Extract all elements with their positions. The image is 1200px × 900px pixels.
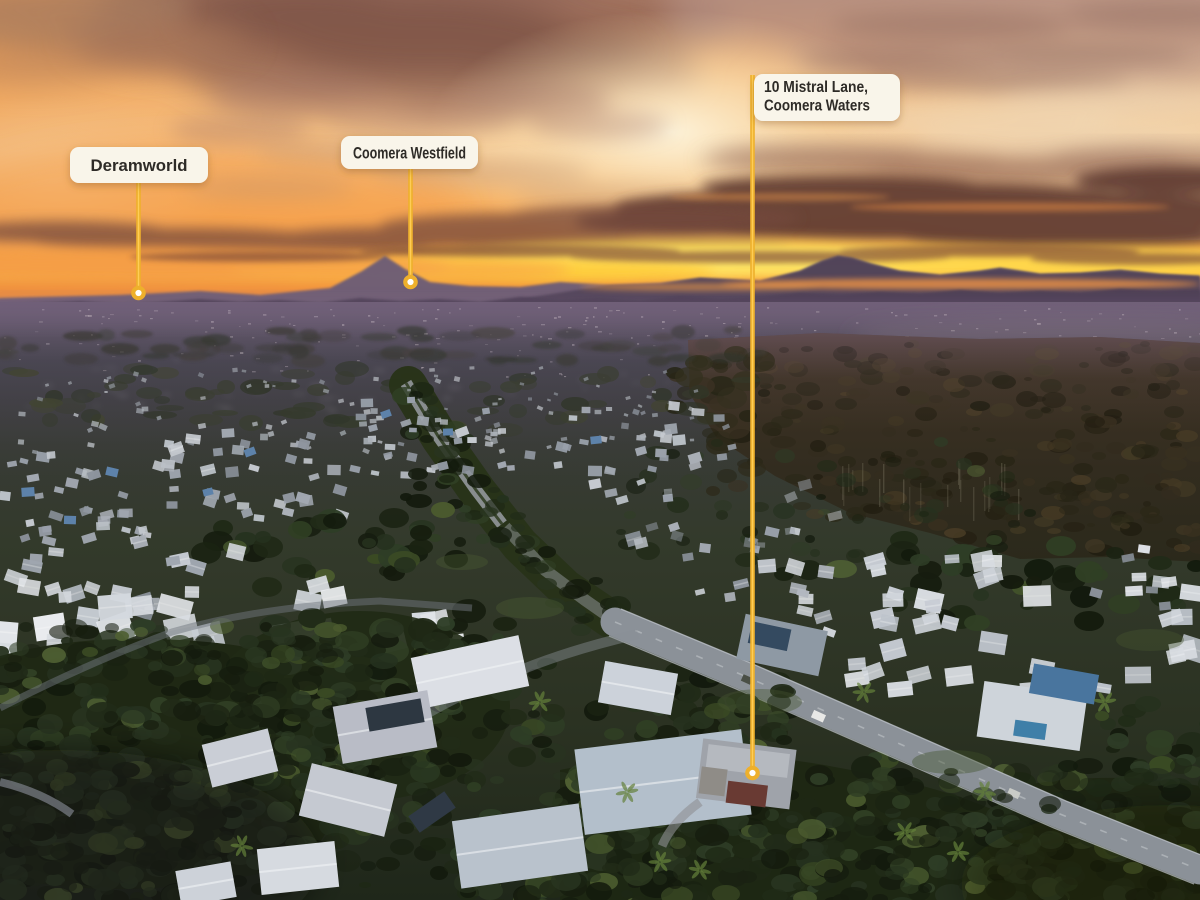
svg-text:Coomera Westfield: Coomera Westfield: [353, 145, 466, 163]
svg-text:10 Mistral Lane,Coomera Waters: 10 Mistral Lane,Coomera Waters: [764, 79, 870, 115]
svg-text:Deramworld: Deramworld: [91, 157, 188, 175]
